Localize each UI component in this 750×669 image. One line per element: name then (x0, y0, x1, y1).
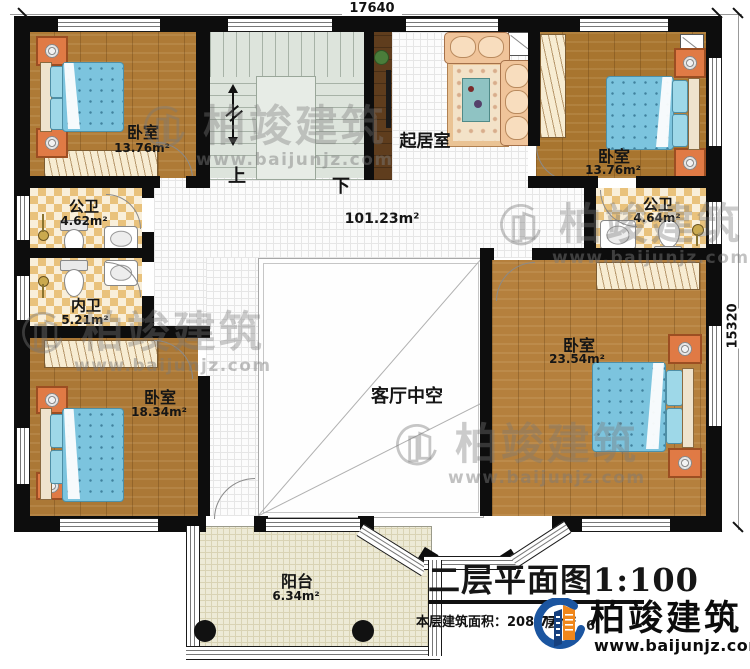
nightstand (668, 448, 702, 478)
wall-segment (364, 16, 374, 180)
wall-segment (528, 16, 540, 146)
toilet-brush (692, 224, 704, 236)
nightstand (36, 128, 68, 158)
wall-segment (186, 176, 210, 188)
wardrobe (596, 262, 700, 290)
dimension-top-value: 17640 (342, 2, 402, 15)
plan-title: 二层平面图1:100 (428, 564, 699, 596)
sofa-cushion (505, 116, 529, 140)
window (60, 518, 158, 532)
wall-segment (196, 16, 210, 182)
room-label-inner-bath: 内卫 (71, 299, 101, 314)
stair-landing (256, 76, 316, 180)
sofa-cushion (450, 36, 476, 58)
floor-plan: 17640 15320 卧室 13.76m² 公卫 4.62m² 内卫 5.21… (0, 0, 750, 669)
window (266, 518, 360, 532)
nightstand (674, 148, 706, 178)
table-decor (468, 86, 474, 92)
stair-treads (314, 77, 364, 180)
balcony-column (352, 620, 374, 642)
window (16, 428, 30, 484)
plant (374, 50, 389, 65)
bed-headboard (688, 78, 700, 150)
table-decor (474, 100, 482, 108)
hall-area-value: 101.23m² (345, 212, 420, 226)
towel-stand (42, 214, 44, 232)
nightstand (668, 334, 702, 364)
pillow (672, 80, 688, 113)
wall-segment (14, 326, 210, 338)
room-label-living-room: 起居室 (400, 134, 451, 151)
pillow (666, 370, 683, 406)
room-label-living-void: 客厅中空 (371, 388, 443, 406)
room-area-public-bath-right: 4.64m² (633, 212, 680, 224)
tv (386, 70, 391, 128)
towel-stand (42, 284, 44, 298)
window (228, 18, 332, 32)
dimension-right-value: 15320 (727, 309, 740, 349)
hallway-floor (154, 258, 206, 326)
sofa-cushion (478, 36, 504, 58)
stair-up-label: 上 (228, 168, 246, 186)
balcony-column (194, 620, 216, 642)
stair-down-label: 下 (332, 178, 350, 196)
room-area-bedroom-top-right: 13.76m² (585, 164, 641, 176)
closet (44, 340, 158, 368)
room-area-bedroom-right: 23.54m² (549, 353, 605, 365)
wall-segment (198, 326, 210, 338)
room-area-public-bath-left: 4.62m² (60, 215, 107, 227)
dimension-line (738, 14, 739, 530)
room-label-balcony: 阳台 (281, 574, 313, 590)
sofa-cushion (505, 64, 529, 88)
window (16, 276, 30, 320)
sofa-cushion (505, 90, 529, 114)
pillow (666, 408, 683, 444)
room-label-bedroom-top-left: 卧室 (127, 125, 159, 141)
wall-segment (480, 248, 492, 516)
wall-segment (636, 176, 722, 188)
window (708, 58, 722, 146)
window (580, 18, 668, 32)
window (582, 518, 670, 532)
balcony-window (186, 646, 440, 660)
brand-logo-icon (534, 598, 586, 656)
window (406, 18, 498, 32)
toilet-brush (696, 234, 698, 246)
room-label-bedroom-bottom-left: 卧室 (144, 390, 176, 406)
window (58, 18, 160, 32)
wall-segment (532, 248, 722, 260)
wall-segment (142, 176, 154, 198)
brand-url-text: www.baijunjz.com (594, 638, 750, 654)
window (16, 196, 30, 240)
room-label-public-bath-left: 公卫 (69, 200, 99, 215)
closet (540, 34, 566, 138)
brand-name-text: 柏竣建筑 (590, 602, 742, 637)
stair-arrowhead (228, 137, 238, 146)
stair-treads (210, 28, 364, 77)
bed-headboard (682, 368, 694, 448)
wall-segment (14, 176, 160, 188)
window (708, 202, 722, 244)
wall-segment (14, 248, 154, 258)
void-cross-lines (258, 258, 482, 516)
room-area-bedroom-top-left: 13.76m² (114, 142, 170, 154)
room-area-inner-bath: 5.21m² (61, 314, 108, 326)
pillow (672, 114, 688, 147)
room-area-balcony: 6.34m² (272, 590, 319, 602)
wall-segment (198, 376, 210, 516)
nightstand (674, 48, 706, 78)
room-area-bedroom-bottom-left: 18.34m² (131, 406, 187, 418)
window (708, 326, 722, 426)
wall-segment (142, 296, 154, 330)
stair-arrowhead (228, 84, 238, 93)
